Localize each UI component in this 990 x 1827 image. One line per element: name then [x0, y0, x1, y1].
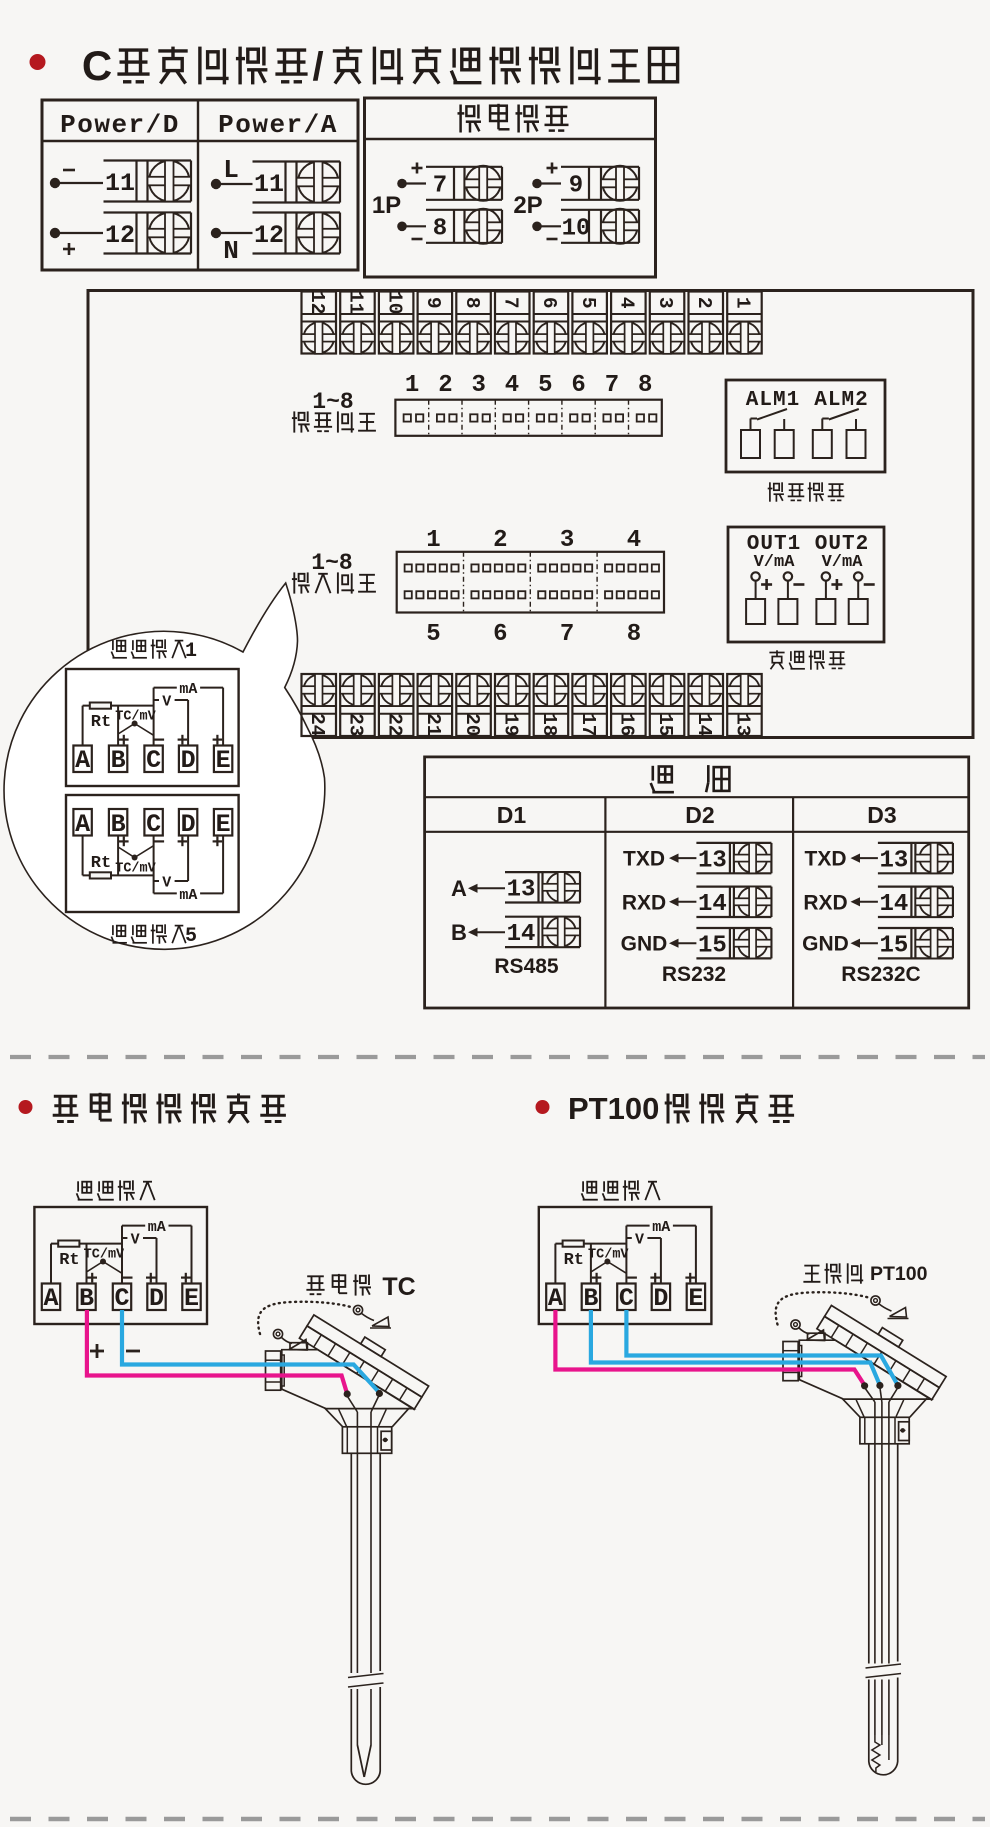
svg-text:D: D: [653, 1284, 668, 1313]
svg-text:A: A: [451, 876, 467, 901]
svg-text:5: 5: [426, 621, 440, 648]
svg-text:mA: mA: [179, 887, 197, 904]
svg-text:2P: 2P: [513, 192, 542, 219]
svg-text:RXD: RXD: [803, 891, 847, 914]
svg-text:2: 2: [493, 527, 507, 554]
svg-text:18: 18: [538, 713, 560, 736]
svg-text:A: A: [75, 746, 90, 775]
svg-text:RXD: RXD: [622, 891, 666, 914]
svg-text:11: 11: [345, 291, 367, 314]
svg-text:1: 1: [185, 640, 197, 663]
svg-text:A: A: [43, 1284, 58, 1313]
svg-text:6: 6: [538, 297, 560, 309]
svg-text:7: 7: [560, 621, 574, 648]
svg-text:/: /: [312, 45, 323, 89]
svg-text:10: 10: [562, 216, 591, 243]
svg-text:mA: mA: [652, 1219, 670, 1236]
svg-text:Power/D: Power/D: [60, 110, 180, 140]
svg-text:B: B: [79, 1284, 94, 1313]
svg-text:L: L: [223, 155, 239, 185]
svg-text:4: 4: [627, 527, 641, 554]
svg-text:Rt: Rt: [91, 854, 111, 873]
svg-text:PT100: PT100: [568, 1091, 659, 1126]
svg-text:D1: D1: [497, 802, 527, 828]
svg-text:13: 13: [879, 847, 908, 874]
svg-text:21: 21: [422, 713, 444, 736]
svg-text:5: 5: [538, 372, 552, 399]
svg-text:E: E: [216, 746, 231, 775]
svg-text:14: 14: [507, 921, 536, 948]
svg-text:RS485: RS485: [494, 955, 559, 978]
svg-text:ALM1: ALM1: [746, 389, 800, 412]
svg-text:ALM2: ALM2: [814, 389, 868, 412]
svg-text:C: C: [114, 1284, 129, 1313]
svg-text:Power/A: Power/A: [218, 110, 338, 140]
svg-text:mA: mA: [179, 681, 197, 698]
svg-text:13: 13: [507, 877, 536, 904]
svg-text:TC: TC: [382, 1273, 415, 1301]
svg-text:D3: D3: [867, 802, 896, 828]
svg-text:2: 2: [693, 297, 715, 309]
svg-text:D: D: [181, 746, 196, 775]
svg-text:7: 7: [605, 372, 619, 399]
svg-text:C: C: [82, 42, 112, 89]
svg-text:TXD: TXD: [623, 848, 665, 871]
svg-text:B: B: [583, 1284, 598, 1313]
svg-text:11: 11: [105, 169, 135, 198]
svg-text:V/mA: V/mA: [754, 553, 796, 572]
svg-text:N: N: [223, 236, 239, 266]
svg-text:8: 8: [638, 372, 652, 399]
svg-text:TC/mV: TC/mV: [588, 1248, 629, 1263]
svg-text:17: 17: [577, 713, 599, 736]
svg-text:Rt: Rt: [564, 1251, 584, 1270]
svg-text:16: 16: [616, 713, 638, 736]
svg-text:8: 8: [627, 621, 641, 648]
svg-text:12: 12: [254, 221, 284, 250]
svg-text:8: 8: [433, 216, 447, 243]
svg-text:6: 6: [493, 621, 507, 648]
svg-text:19: 19: [499, 713, 521, 736]
svg-text:3: 3: [654, 297, 676, 309]
svg-text:E: E: [184, 1284, 199, 1313]
svg-text:RS232: RS232: [662, 963, 726, 986]
svg-text:1~8: 1~8: [311, 550, 352, 576]
svg-text:24: 24: [306, 713, 328, 737]
svg-text:2: 2: [438, 372, 452, 399]
svg-text:D: D: [149, 1284, 164, 1313]
svg-text:7: 7: [499, 297, 521, 309]
svg-text:20: 20: [461, 713, 483, 736]
svg-text:TC/mV: TC/mV: [84, 1248, 125, 1263]
svg-text:A: A: [548, 1284, 563, 1313]
svg-text:12: 12: [105, 221, 135, 250]
svg-text:PT100: PT100: [870, 1263, 928, 1285]
svg-text:13: 13: [732, 713, 754, 736]
svg-text:B: B: [111, 810, 126, 839]
svg-text:V: V: [131, 1232, 140, 1249]
svg-text:GND: GND: [802, 933, 849, 956]
svg-text:12: 12: [306, 291, 328, 314]
svg-text:7: 7: [433, 173, 447, 200]
svg-text:Rt: Rt: [91, 713, 111, 732]
svg-text:10: 10: [383, 291, 405, 314]
svg-text:A: A: [75, 810, 90, 839]
svg-text:23: 23: [345, 713, 367, 736]
svg-text:1P: 1P: [372, 192, 401, 219]
svg-text:5: 5: [577, 297, 599, 309]
svg-text:6: 6: [571, 372, 585, 399]
svg-text:B: B: [111, 746, 126, 775]
svg-text:V/mA: V/mA: [822, 553, 864, 572]
svg-text:B: B: [451, 920, 467, 945]
svg-text:3: 3: [560, 527, 574, 554]
svg-text:V: V: [635, 1232, 644, 1249]
svg-text:15: 15: [698, 932, 727, 959]
svg-text:4: 4: [616, 297, 638, 309]
svg-text:14: 14: [693, 713, 715, 737]
svg-text:9: 9: [569, 173, 583, 200]
svg-text:D: D: [181, 810, 196, 839]
svg-text:TC/mV: TC/mV: [115, 862, 156, 877]
svg-text:1: 1: [732, 297, 754, 309]
svg-text:8: 8: [461, 297, 483, 309]
svg-text:1: 1: [426, 527, 440, 554]
svg-text:Rt: Rt: [59, 1251, 79, 1270]
svg-text:15: 15: [654, 713, 676, 736]
svg-text:E: E: [688, 1284, 703, 1313]
svg-text:1: 1: [405, 372, 419, 399]
svg-text:C: C: [619, 1284, 634, 1313]
svg-text:22: 22: [383, 713, 405, 736]
svg-text:C: C: [146, 746, 161, 775]
svg-text:D2: D2: [685, 802, 714, 828]
svg-text:V: V: [162, 694, 171, 711]
svg-text:C: C: [146, 810, 161, 839]
svg-text:9: 9: [422, 297, 444, 309]
svg-text:1~8: 1~8: [312, 389, 353, 415]
svg-text:mA: mA: [148, 1219, 166, 1236]
svg-text:V: V: [162, 875, 171, 892]
svg-text:11: 11: [254, 170, 284, 199]
svg-text:E: E: [216, 810, 231, 839]
svg-text:GND: GND: [621, 933, 668, 956]
svg-text:5: 5: [185, 925, 197, 948]
svg-text:14: 14: [879, 891, 908, 918]
svg-text:4: 4: [505, 372, 519, 399]
svg-text:TC/mV: TC/mV: [115, 710, 156, 725]
svg-text:15: 15: [879, 932, 908, 959]
svg-text:3: 3: [471, 372, 485, 399]
svg-text:14: 14: [698, 891, 727, 918]
svg-text:TXD: TXD: [805, 848, 847, 871]
svg-text:RS232C: RS232C: [841, 963, 920, 986]
svg-text:13: 13: [698, 847, 727, 874]
